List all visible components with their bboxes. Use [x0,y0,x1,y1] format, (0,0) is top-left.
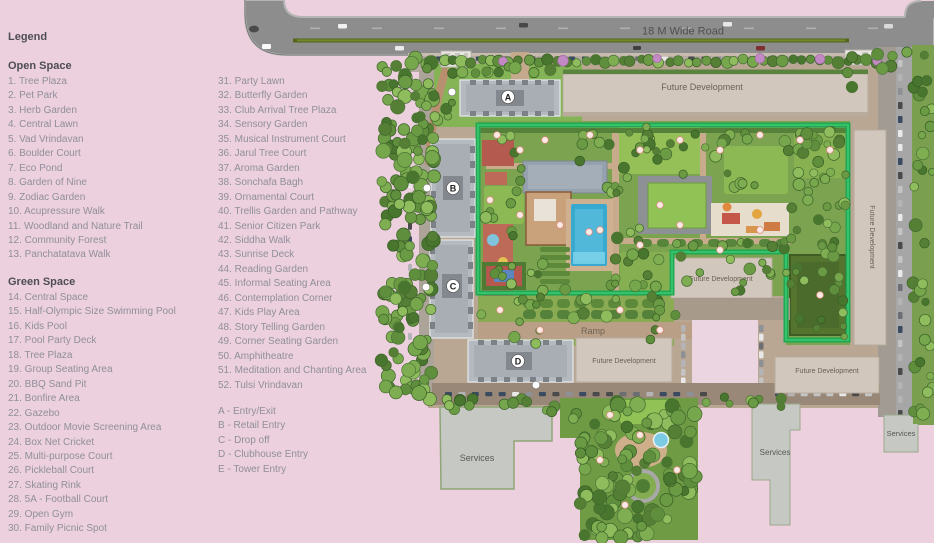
svg-text:Future Development: Future Development [592,358,655,365]
svg-text:18 M Wide Road: 18 M Wide Road [642,26,724,38]
svg-text:Future Development: Future Development [868,205,875,268]
svg-text:Services: Services [887,429,916,438]
svg-text:Ramp: Ramp [581,326,605,336]
svg-text:A: A [505,93,512,103]
svg-text:Future Development: Future Development [795,368,858,375]
svg-text:Services: Services [460,453,495,463]
svg-text:Services: Services [760,448,791,457]
svg-text:B: B [450,184,457,194]
svg-text:C: C [450,282,457,292]
svg-text:Future Development: Future Development [661,82,743,92]
svg-text:D: D [515,357,522,367]
